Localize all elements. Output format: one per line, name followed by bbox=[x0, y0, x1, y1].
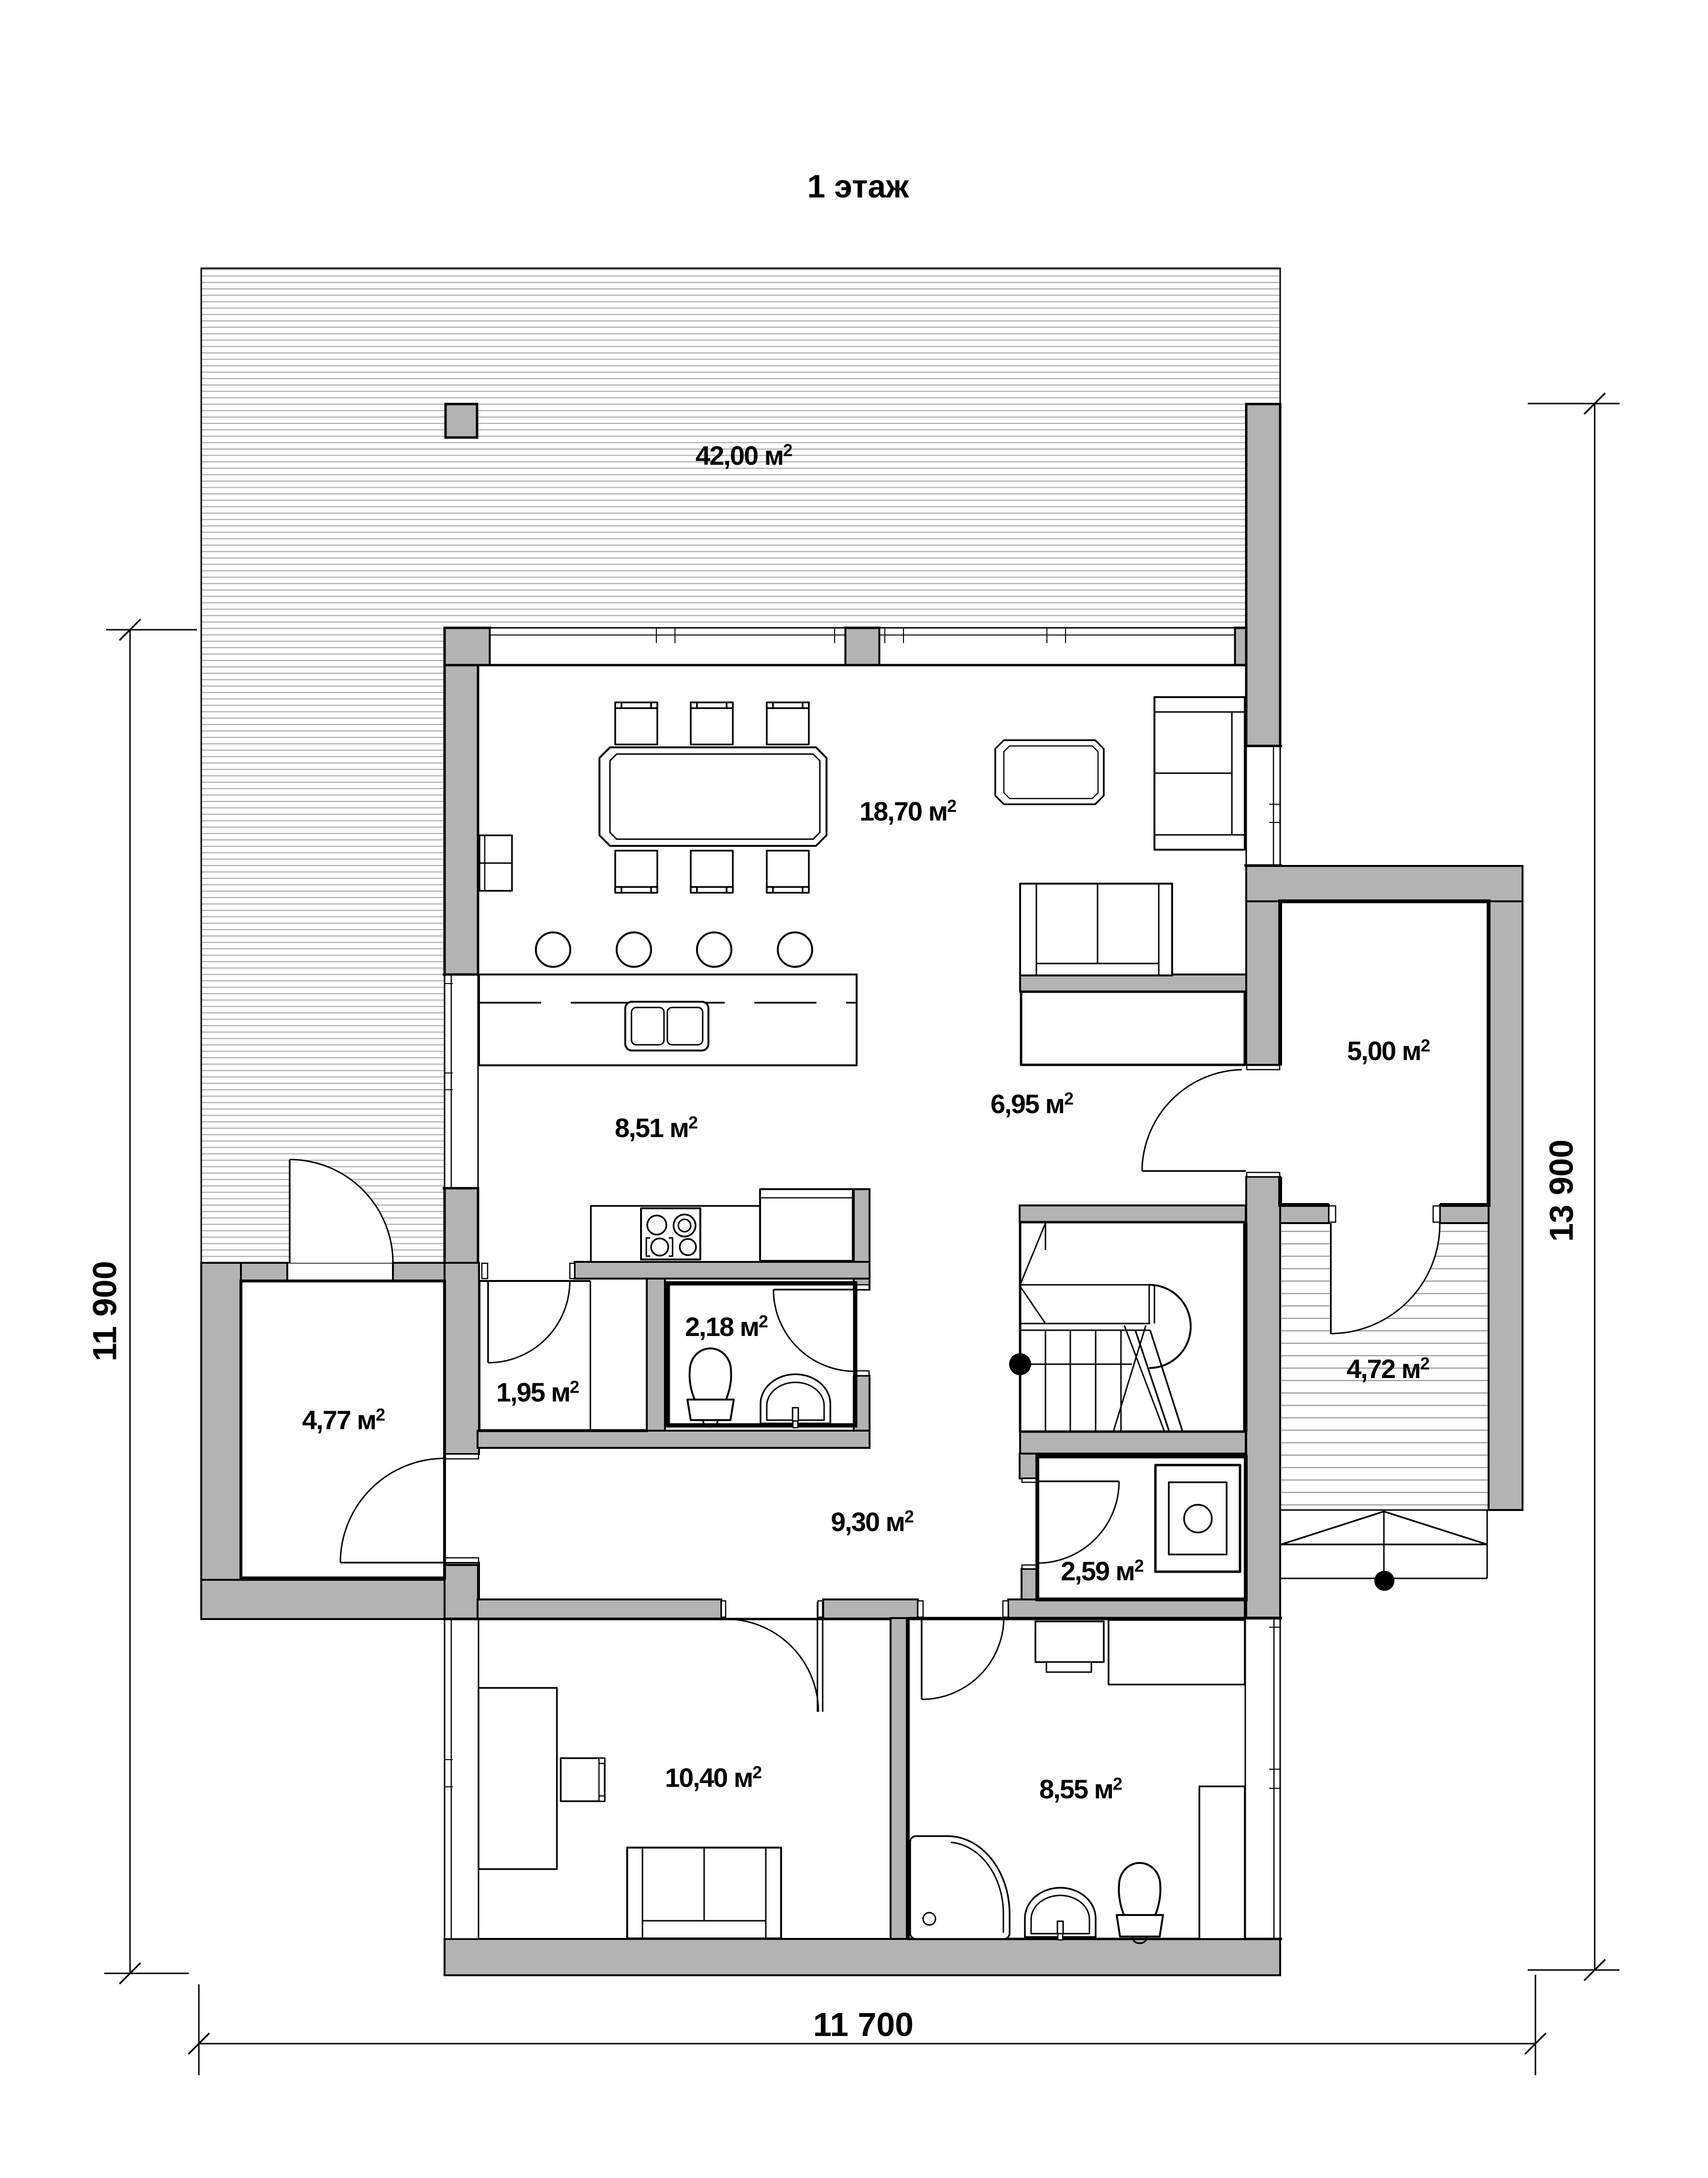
svg-text:4,77 м2: 4,77 м2 bbox=[302, 1405, 385, 1435]
svg-text:42,00 м2: 42,00 м2 bbox=[696, 440, 792, 471]
svg-text:2,18 м2: 2,18 м2 bbox=[685, 1312, 768, 1342]
svg-text:8,55 м2: 8,55 м2 bbox=[1039, 1774, 1122, 1804]
svg-text:2,59 м2: 2,59 м2 bbox=[1061, 1556, 1143, 1586]
svg-text:1 этаж: 1 этаж bbox=[807, 168, 909, 205]
svg-text:10,40 м2: 10,40 м2 bbox=[665, 1762, 762, 1793]
svg-text:5,00 м2: 5,00 м2 bbox=[1347, 1036, 1430, 1066]
svg-text:6,95 м2: 6,95 м2 bbox=[990, 1089, 1073, 1119]
svg-text:4,72 м2: 4,72 м2 bbox=[1347, 1354, 1429, 1384]
svg-text:1,95 м2: 1,95 м2 bbox=[496, 1377, 579, 1407]
svg-text:11 900: 11 900 bbox=[86, 1261, 123, 1361]
svg-text:11 700: 11 700 bbox=[813, 2006, 914, 2043]
svg-text:8,51 м2: 8,51 м2 bbox=[615, 1113, 697, 1143]
svg-text:9,30 м2: 9,30 м2 bbox=[831, 1507, 914, 1537]
svg-text:13 900: 13 900 bbox=[1543, 1139, 1580, 1242]
svg-text:18,70 м2: 18,70 м2 bbox=[859, 796, 956, 826]
